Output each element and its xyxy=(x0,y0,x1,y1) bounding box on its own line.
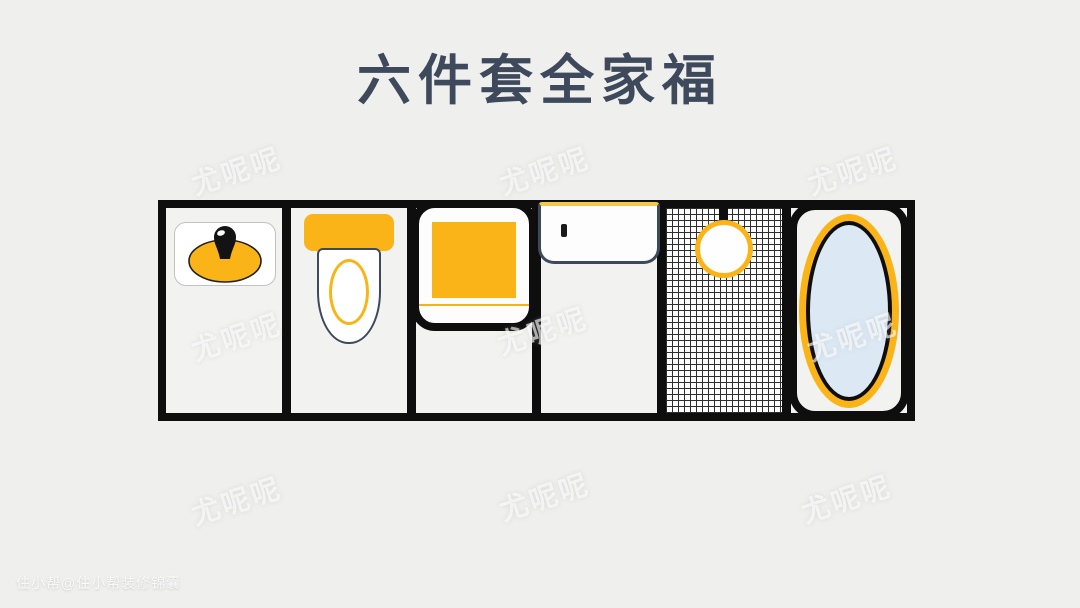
poster: 六件套全家福 xyxy=(0,0,1080,608)
toilet-seat-ring-icon xyxy=(329,259,369,325)
shower-drain-icon xyxy=(695,220,753,278)
panel-toilet xyxy=(291,208,407,413)
panel-shower-tray xyxy=(416,208,532,413)
toilet-tank-icon xyxy=(304,214,394,251)
page-title: 六件套全家福 xyxy=(0,36,1080,115)
watermark: 尤呢呢 xyxy=(186,137,287,204)
watermark: 尤呢呢 xyxy=(802,137,903,204)
watermark: 尤呢呢 xyxy=(796,465,897,532)
watermark: 尤呢呢 xyxy=(494,137,595,204)
panel-rect-bathtub xyxy=(541,208,657,413)
washbasin-icon xyxy=(174,222,276,286)
rect-bathtub-faucet-icon xyxy=(561,224,567,237)
shower-tray-base-icon xyxy=(432,222,516,298)
shower-tray-icon xyxy=(411,200,537,331)
panel-shower-room xyxy=(666,208,782,413)
washbasin-graphic xyxy=(175,223,275,285)
shower-tray-line-icon xyxy=(419,304,529,306)
fixture-strip xyxy=(158,200,915,421)
watermark: 尤呢呢 xyxy=(494,463,595,530)
oval-bathtub-frame-icon xyxy=(789,202,909,419)
credit-watermark: 住小帮@住小帮装修锦囊 xyxy=(16,573,181,593)
oval-bathtub-basin-icon xyxy=(806,221,892,401)
watermark: 尤呢呢 xyxy=(186,467,287,534)
panel-oval-bathtub xyxy=(791,208,907,413)
panel-washbasin xyxy=(166,208,282,413)
rect-bathtub-icon xyxy=(538,202,660,264)
toilet-bowl-icon xyxy=(317,248,381,344)
